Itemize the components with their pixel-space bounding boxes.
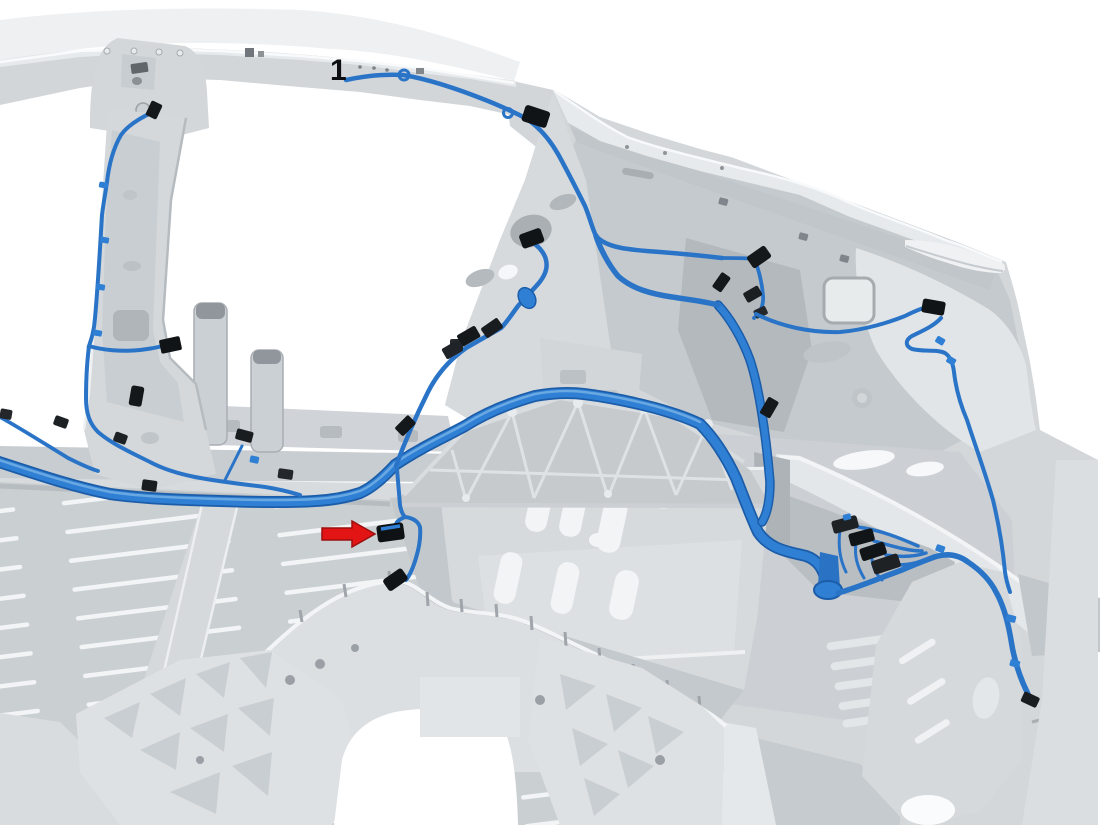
svg-text:1: 1 (330, 54, 347, 87)
